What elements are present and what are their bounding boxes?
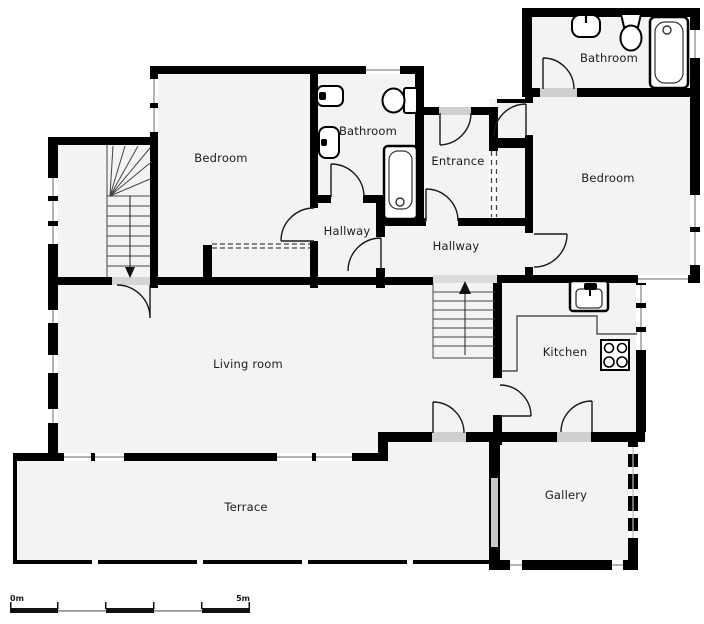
room-label-bedroom-right: Bedroom (581, 171, 634, 185)
room-label-gallery: Gallery (545, 488, 587, 502)
room-label-entrance: Entrance (431, 154, 484, 168)
bathtub-icon (384, 146, 417, 219)
room-label-bathroom-middle: Bathroom (339, 124, 397, 138)
sink-icon (572, 15, 600, 37)
room-label-kitchen: Kitchen (543, 345, 588, 359)
sink-icon (317, 86, 343, 106)
room-label-hallway-left: Hallway (324, 224, 371, 238)
toilet-icon (383, 88, 418, 113)
toilet-icon (621, 14, 642, 51)
sliding-door-dashed (489, 151, 498, 217)
floorplan-drawing (0, 0, 704, 624)
bathtub-icon (650, 17, 688, 88)
room-label-living-room: Living room (213, 357, 283, 371)
room-label-bedroom-left: Bedroom (194, 151, 247, 165)
bidet-icon (319, 127, 339, 158)
scale-start-label: 0m (10, 594, 24, 603)
room-label-terrace: Terrace (224, 500, 267, 514)
room-label-bathroom-top-right: Bathroom (580, 51, 638, 65)
kitchen-sink-icon (570, 281, 608, 311)
scale-bar (10, 602, 250, 613)
floorplan-canvas: Bathroom Bedroom Bathroom Entrance Bedro… (0, 0, 704, 624)
stove-icon (601, 340, 629, 370)
scale-end-label: 5m (236, 594, 250, 603)
room-label-hallway-right: Hallway (433, 239, 480, 253)
